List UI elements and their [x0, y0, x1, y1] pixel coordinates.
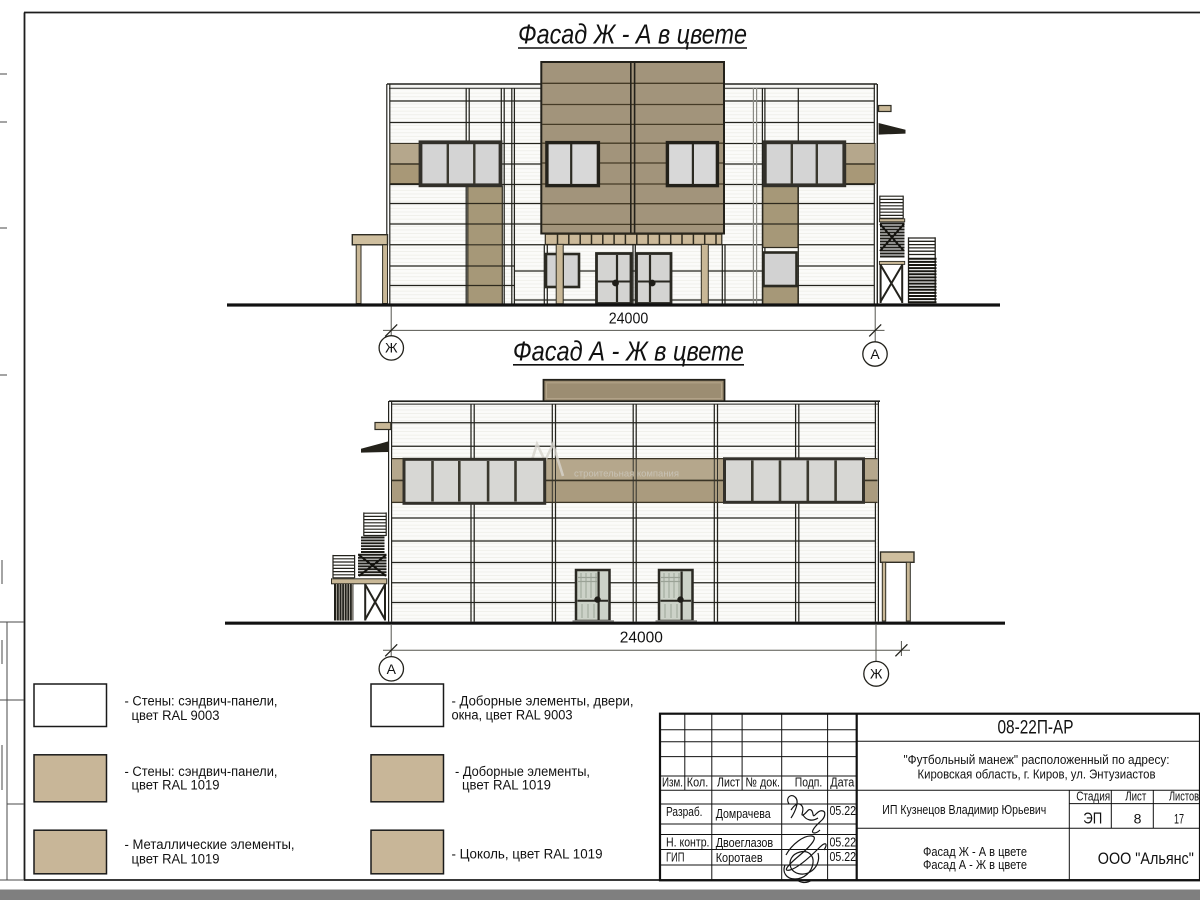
svg-text:цвет RAL 1019: цвет RAL 1019 — [132, 852, 220, 867]
svg-text:Двоеглазов: Двоеглазов — [716, 835, 774, 850]
svg-text:Коротаев: Коротаев — [716, 850, 763, 865]
svg-text:Н. контр.: Н. контр. — [666, 835, 710, 850]
svg-text:"Футбольный манеж" расположенн: "Футбольный манеж" расположенный по адре… — [904, 752, 1170, 767]
svg-text:ООО "Альянс": ООО "Альянс" — [1098, 849, 1194, 868]
svg-text:ЭП: ЭП — [1083, 811, 1102, 828]
svg-text:- Цоколь, цвет RAL 1019: - Цоколь, цвет RAL 1019 — [452, 847, 603, 862]
svg-text:Кол.: Кол. — [687, 775, 709, 790]
svg-text:08-22П-АР: 08-22П-АР — [998, 718, 1074, 739]
svg-text:- Металлические элементы,: - Металлические элементы, — [125, 837, 295, 852]
svg-text:А: А — [870, 346, 880, 362]
svg-text:Дата: Дата — [830, 775, 855, 790]
svg-text:ИП Кузнецов Владимир Юрьевич: ИП Кузнецов Владимир Юрьевич — [882, 802, 1046, 817]
svg-text:05.22: 05.22 — [830, 849, 857, 864]
svg-text:Фасад А - Ж в цвете: Фасад А - Ж в цвете — [513, 336, 744, 367]
svg-text:Разраб.: Разраб. — [666, 804, 703, 819]
svg-text:цвет RAL 9003: цвет RAL 9003 — [132, 708, 220, 723]
svg-text:Изм.: Изм. — [662, 775, 683, 790]
svg-text:8: 8 — [1134, 811, 1142, 827]
svg-text:ГИП: ГИП — [666, 850, 685, 865]
svg-text:Лист: Лист — [1125, 789, 1146, 804]
svg-text:Подп.: Подп. — [795, 775, 823, 790]
svg-text:Ж: Ж — [870, 667, 883, 682]
svg-text:Стадия: Стадия — [1076, 789, 1110, 804]
svg-text:Домрачева: Домрачева — [716, 806, 772, 821]
svg-text:Листов: Листов — [1169, 789, 1199, 804]
svg-text:Фасад Ж - А в цвете: Фасад Ж - А в цвете — [518, 19, 747, 50]
svg-text:24000: 24000 — [609, 311, 649, 328]
svg-text:№ док.: № док. — [745, 775, 780, 790]
svg-text:окна, цвет RAL 9003: окна, цвет RAL 9003 — [452, 708, 573, 723]
svg-text:Фасад А - Ж в цвете: Фасад А - Ж в цвете — [923, 857, 1027, 872]
svg-text:Лист: Лист — [717, 775, 740, 790]
svg-text:А: А — [387, 661, 397, 677]
svg-text:цвет RAL 1019: цвет RAL 1019 — [132, 778, 220, 793]
svg-text:17: 17 — [1174, 811, 1184, 827]
svg-text:- Стены: сэндвич-панели,: - Стены: сэндвич-панели, — [125, 694, 278, 709]
svg-text:24000: 24000 — [620, 630, 663, 647]
svg-text:строительная компания: строительная компания — [574, 469, 679, 480]
svg-text:Кировская область, г. Киров, у: Кировская область, г. Киров, ул. Энтузиа… — [918, 767, 1156, 782]
svg-text:05.22: 05.22 — [830, 803, 857, 818]
svg-text:Ж: Ж — [385, 341, 398, 356]
svg-text:цвет RAL 1019: цвет RAL 1019 — [462, 778, 551, 793]
svg-text:05.22: 05.22 — [830, 835, 857, 850]
svg-text:- Доборные элементы, двери,: - Доборные элементы, двери, — [452, 694, 634, 709]
